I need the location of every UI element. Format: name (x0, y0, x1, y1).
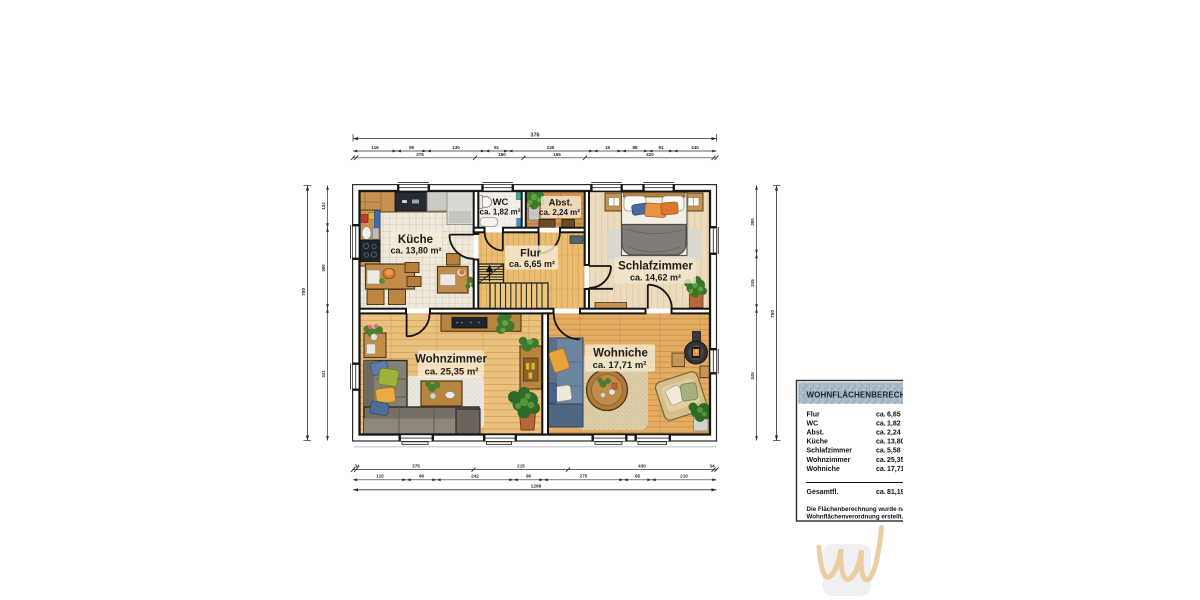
svg-text:134: 134 (321, 202, 326, 210)
svg-text:150: 150 (498, 152, 506, 157)
svg-text:ca. 25,35 m²: ca. 25,35 m² (425, 367, 479, 378)
svg-text:750: 750 (301, 288, 307, 296)
svg-text:Wohniche: Wohniche (593, 348, 648, 360)
svg-text:95: 95 (409, 145, 415, 150)
svg-text:Küche: Küche (398, 234, 433, 246)
svg-text:116: 116 (371, 145, 379, 150)
svg-text:ca.: ca. (876, 420, 886, 427)
svg-text:96: 96 (419, 473, 425, 478)
svg-text:210: 210 (680, 473, 688, 478)
svg-text:WC: WC (493, 197, 509, 208)
svg-text:1298: 1298 (531, 483, 542, 489)
svg-text:750: 750 (770, 310, 776, 318)
svg-text:88: 88 (632, 145, 638, 150)
svg-text:430: 430 (638, 463, 646, 468)
svg-text:91: 91 (658, 145, 664, 150)
svg-text:ca. 2,24 m²: ca. 2,24 m² (539, 208, 580, 217)
svg-text:ca.: ca. (876, 466, 886, 473)
svg-text:Abst.: Abst. (549, 198, 573, 209)
svg-text:300: 300 (750, 218, 755, 226)
svg-text:Abst.: Abst. (807, 430, 825, 437)
svg-text:420: 420 (646, 152, 654, 157)
svg-text:110: 110 (376, 473, 384, 478)
svg-text:242: 242 (471, 473, 479, 478)
svg-text:Wohnflächenverordnung erstellt: Wohnflächenverordnung erstellt. (807, 514, 904, 521)
svg-text:130: 130 (452, 145, 460, 150)
svg-text:65: 65 (635, 473, 641, 478)
svg-text:ca. 14,62 m²: ca. 14,62 m² (630, 273, 681, 283)
svg-text:34: 34 (354, 463, 360, 468)
svg-text:91: 91 (494, 145, 500, 150)
svg-text:34: 34 (709, 463, 715, 468)
svg-text:Schlafzimmer: Schlafzimmer (807, 448, 853, 455)
svg-text:Flur: Flur (520, 248, 541, 260)
svg-text:ca. 6,65 m²: ca. 6,65 m² (509, 259, 555, 269)
svg-text:ca.: ca. (876, 439, 886, 446)
svg-text:Wohnzimmer: Wohnzimmer (415, 354, 488, 366)
svg-text:Schlafzimmer: Schlafzimmer (618, 261, 693, 273)
svg-text:ca.: ca. (876, 457, 886, 464)
svg-text:Küche: Küche (807, 439, 829, 446)
svg-text:ca. 17,71 m²: ca. 17,71 m² (593, 360, 647, 371)
svg-text:275: 275 (580, 473, 588, 478)
svg-text:15: 15 (605, 145, 611, 150)
svg-text:375: 375 (412, 463, 420, 468)
svg-text:245: 245 (750, 279, 755, 287)
svg-text:215: 215 (517, 463, 525, 468)
svg-text:230: 230 (547, 145, 555, 150)
svg-text:WC: WC (807, 420, 819, 427)
svg-text:165: 165 (553, 152, 561, 157)
svg-text:Wohniche: Wohniche (807, 466, 840, 473)
svg-text:ca.: ca. (876, 430, 886, 437)
svg-text:341: 341 (321, 370, 326, 378)
svg-text:300: 300 (321, 264, 326, 272)
svg-text:ca.: ca. (876, 448, 886, 455)
svg-text:ca.: ca. (876, 489, 886, 496)
svg-text:ca.: ca. (876, 411, 886, 418)
svg-text:Flur: Flur (807, 411, 820, 418)
svg-text:345: 345 (750, 372, 755, 380)
svg-text:Wohnzimmer: Wohnzimmer (807, 457, 851, 464)
svg-text:ca. 13,80 m²: ca. 13,80 m² (390, 246, 441, 256)
svg-text:375: 375 (416, 152, 424, 157)
svg-text:Gesamtfl.: Gesamtfl. (807, 489, 839, 496)
svg-text:376: 376 (530, 133, 539, 139)
svg-text:440: 440 (691, 145, 699, 150)
svg-text:ca. 1,82 m²: ca. 1,82 m² (480, 208, 521, 217)
svg-text:96: 96 (526, 473, 532, 478)
